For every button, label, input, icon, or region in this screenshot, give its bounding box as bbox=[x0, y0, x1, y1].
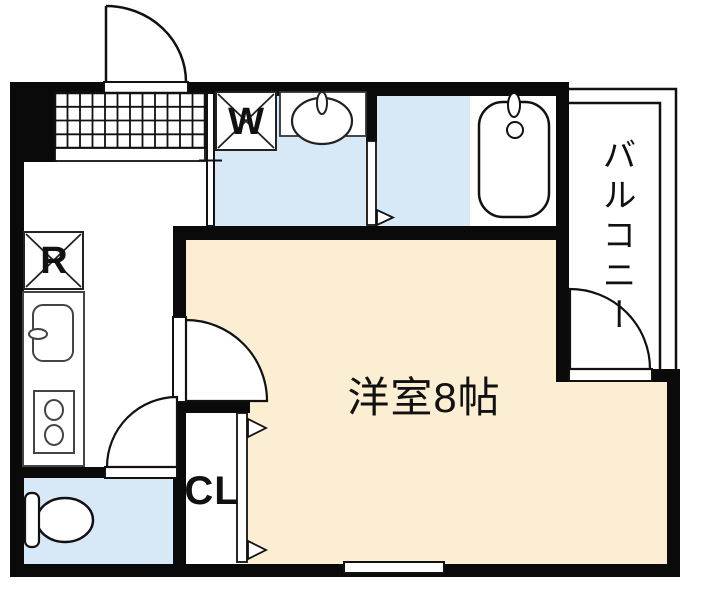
wall-hall-mainroom bbox=[173, 226, 186, 317]
washbasin bbox=[280, 92, 366, 144]
floorplan: 洋室8帖 バルコニー W R CL bbox=[0, 0, 709, 589]
balcony-door-opening bbox=[569, 369, 652, 381]
entrance-step bbox=[55, 148, 205, 161]
wall-mainroom-top bbox=[173, 226, 569, 240]
kitchen-burner-top bbox=[45, 400, 63, 420]
window-bottom bbox=[344, 562, 444, 573]
main-room-label: 洋室8帖 bbox=[347, 377, 500, 419]
balcony-label: バルコニー bbox=[599, 137, 633, 337]
bathtub-outline bbox=[479, 102, 549, 217]
mainroom-door-opening bbox=[173, 317, 186, 402]
kitchen-burner-bottom bbox=[45, 425, 63, 445]
closet-label: CL bbox=[184, 471, 239, 511]
wall-entrance-block bbox=[10, 82, 57, 162]
bathtub bbox=[479, 93, 549, 217]
wall-washroom-bathroom bbox=[366, 82, 377, 142]
entrance-door bbox=[106, 6, 186, 82]
wall-right-lower bbox=[667, 369, 680, 577]
refrigerator-label: R bbox=[40, 242, 67, 280]
bathtub-faucet bbox=[508, 93, 520, 117]
washbasin-faucet bbox=[317, 92, 327, 114]
toilet-bowl bbox=[37, 498, 93, 542]
toilet-tank bbox=[25, 493, 39, 547]
bathtub-drain bbox=[507, 122, 523, 138]
entrance-door-arc bbox=[106, 6, 186, 82]
kitchen bbox=[23, 292, 84, 466]
washer-label: W bbox=[228, 103, 264, 141]
bathroom-sliding-door-panel bbox=[367, 141, 376, 225]
kitchen-faucet bbox=[29, 329, 47, 339]
toilet-door-opening bbox=[105, 467, 177, 478]
toilet-door-swing bbox=[107, 397, 177, 467]
